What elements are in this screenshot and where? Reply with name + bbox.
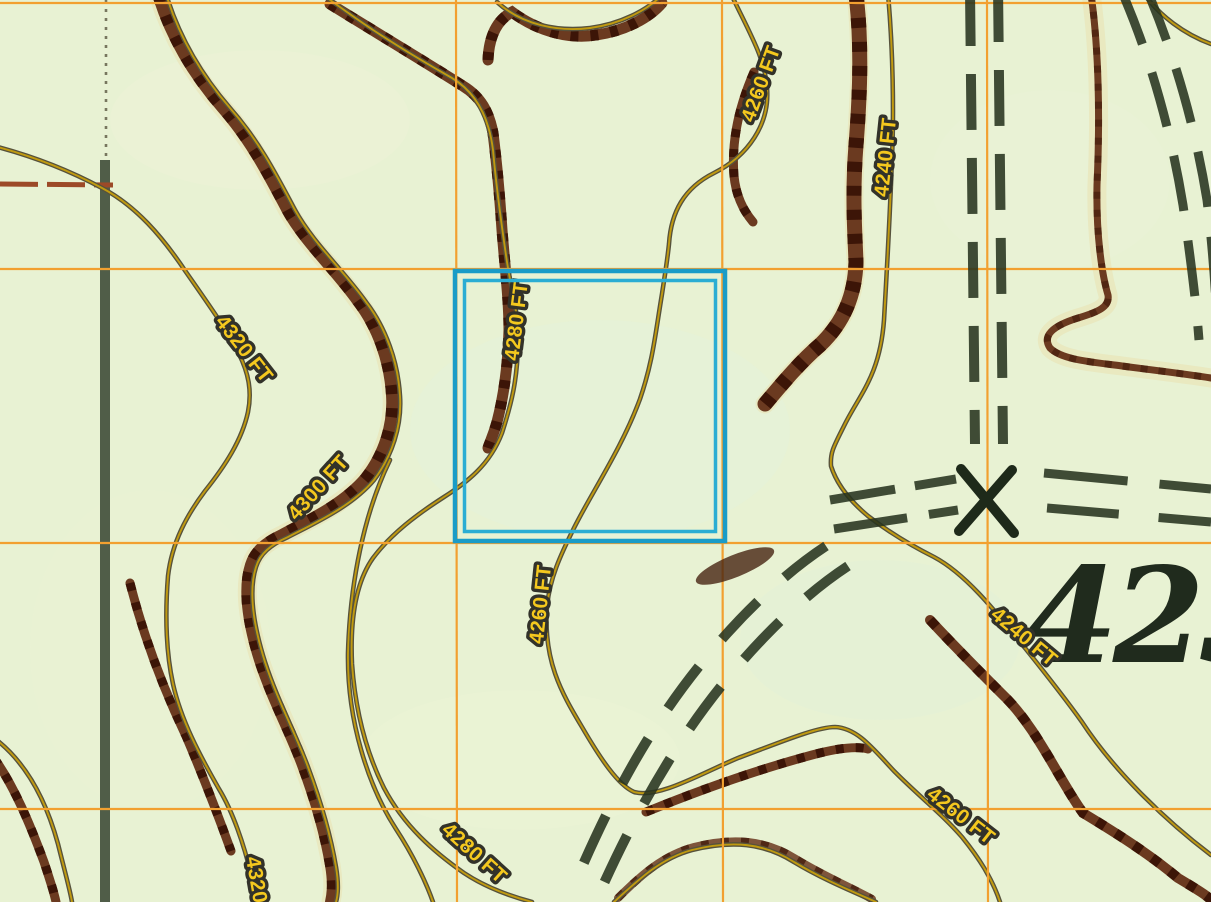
map-canvas[interactable]: 423 4320 FT 4300 FT 4280 FT 4260 FT 4240… (0, 0, 1211, 902)
grid-line-vertical (987, 0, 988, 902)
topo-map-svg: 423 4320 FT 4300 FT 4280 FT 4260 FT 4240… (0, 0, 1211, 902)
spot-elevation-text: 423 (1026, 539, 1211, 694)
